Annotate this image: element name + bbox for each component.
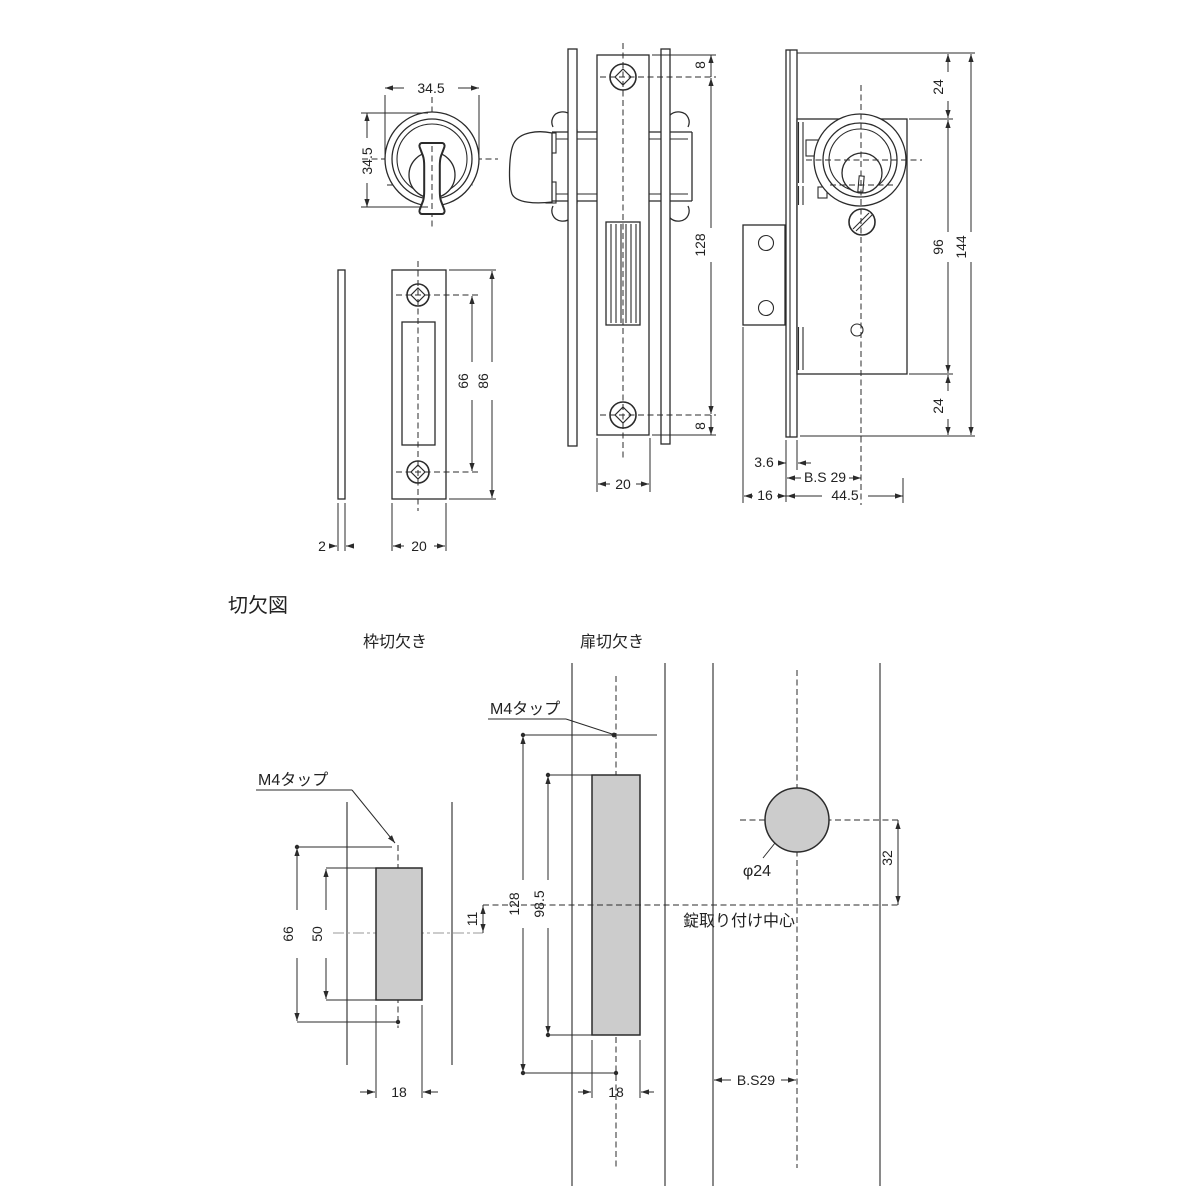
door-cutout-diagram: M4タップ 128 98.5 [488, 663, 665, 1186]
strike-holes-dim: 66 [455, 373, 471, 389]
plate-thickness-dim: 3.6 [754, 454, 774, 470]
front-mid-dim: 96 [930, 239, 946, 255]
cutout-section: 切欠図 枠切欠き 扉切欠き M4タップ 66 50 [228, 594, 900, 1186]
door-inner-dim: 98.5 [531, 890, 547, 917]
front-backset-dim: B.S 29 [804, 469, 846, 485]
frame-width-dim: 18 [391, 1084, 407, 1100]
door-edge-diagram: φ24 32 錠取り付け中心 B.S29 [483, 663, 900, 1186]
door-tap-label: M4タップ [490, 700, 560, 718]
frame-offset-dim: 11 [464, 912, 480, 927]
strike-height-dim: 86 [475, 373, 491, 389]
side-bottom-dim: 8 [692, 422, 708, 430]
frame-outer-dim: 66 [280, 926, 296, 942]
lock-front-view: 24 96 24 144 3.6 B.S 29 16 44.5 [743, 50, 975, 505]
frame-cutout-area [376, 868, 422, 1000]
frame-cutout-diagram: M4タップ 66 50 18 [256, 771, 483, 1100]
side-top-dim: 8 [692, 61, 708, 69]
strike-thickness-dim: 2 [318, 538, 326, 554]
thumbturn-front-view: 34.5 34.5 [359, 80, 498, 228]
door-outer-dim: 128 [506, 892, 522, 916]
frame-inner-dim: 50 [309, 926, 325, 942]
knob-height-dim: 34.5 [359, 147, 375, 174]
side-width-dim: 20 [615, 476, 631, 492]
hole-diameter-dim: φ24 [743, 863, 771, 880]
door-cutout-label: 扉切欠き [580, 633, 644, 651]
door-width-dim: 18 [608, 1084, 624, 1100]
hole-offset-dim: 32 [879, 850, 895, 866]
knob-width-dim: 34.5 [417, 80, 444, 96]
strike-side-view [338, 270, 345, 499]
front-bottom-dim: 24 [930, 398, 946, 414]
frame-tap-label: M4タップ [258, 771, 328, 789]
lock-side-view: 8 128 8 20 [510, 43, 716, 492]
section-heading: 切欠図 [228, 594, 288, 617]
lock-dimension-drawing: 34.5 34.5 [0, 0, 1200, 1200]
lock-center-note: 錠取り付け中心 [683, 912, 795, 930]
side-body-dim: 128 [692, 233, 708, 257]
latch-bolt [510, 132, 552, 203]
strike-width-dim: 20 [411, 538, 427, 554]
strike-plate-views: 66 86 20 2 [318, 261, 496, 554]
front-top-dim: 24 [930, 79, 946, 95]
right-rail [661, 49, 670, 444]
edge-backset-dim: B.S29 [737, 1072, 775, 1088]
frame-cutout-label: 枠切欠き [363, 633, 427, 651]
cylinder-screw [849, 209, 875, 235]
left-rail [568, 49, 577, 446]
tab-width-dim: 16 [757, 487, 773, 503]
technical-drawing-page: 34.5 34.5 [0, 0, 1200, 1200]
mounting-bracket [743, 225, 785, 325]
faceplate-edge [786, 50, 797, 437]
front-total-dim: 144 [953, 235, 969, 259]
depth-dim: 44.5 [831, 487, 858, 503]
cylinder-hole-area [765, 788, 829, 852]
